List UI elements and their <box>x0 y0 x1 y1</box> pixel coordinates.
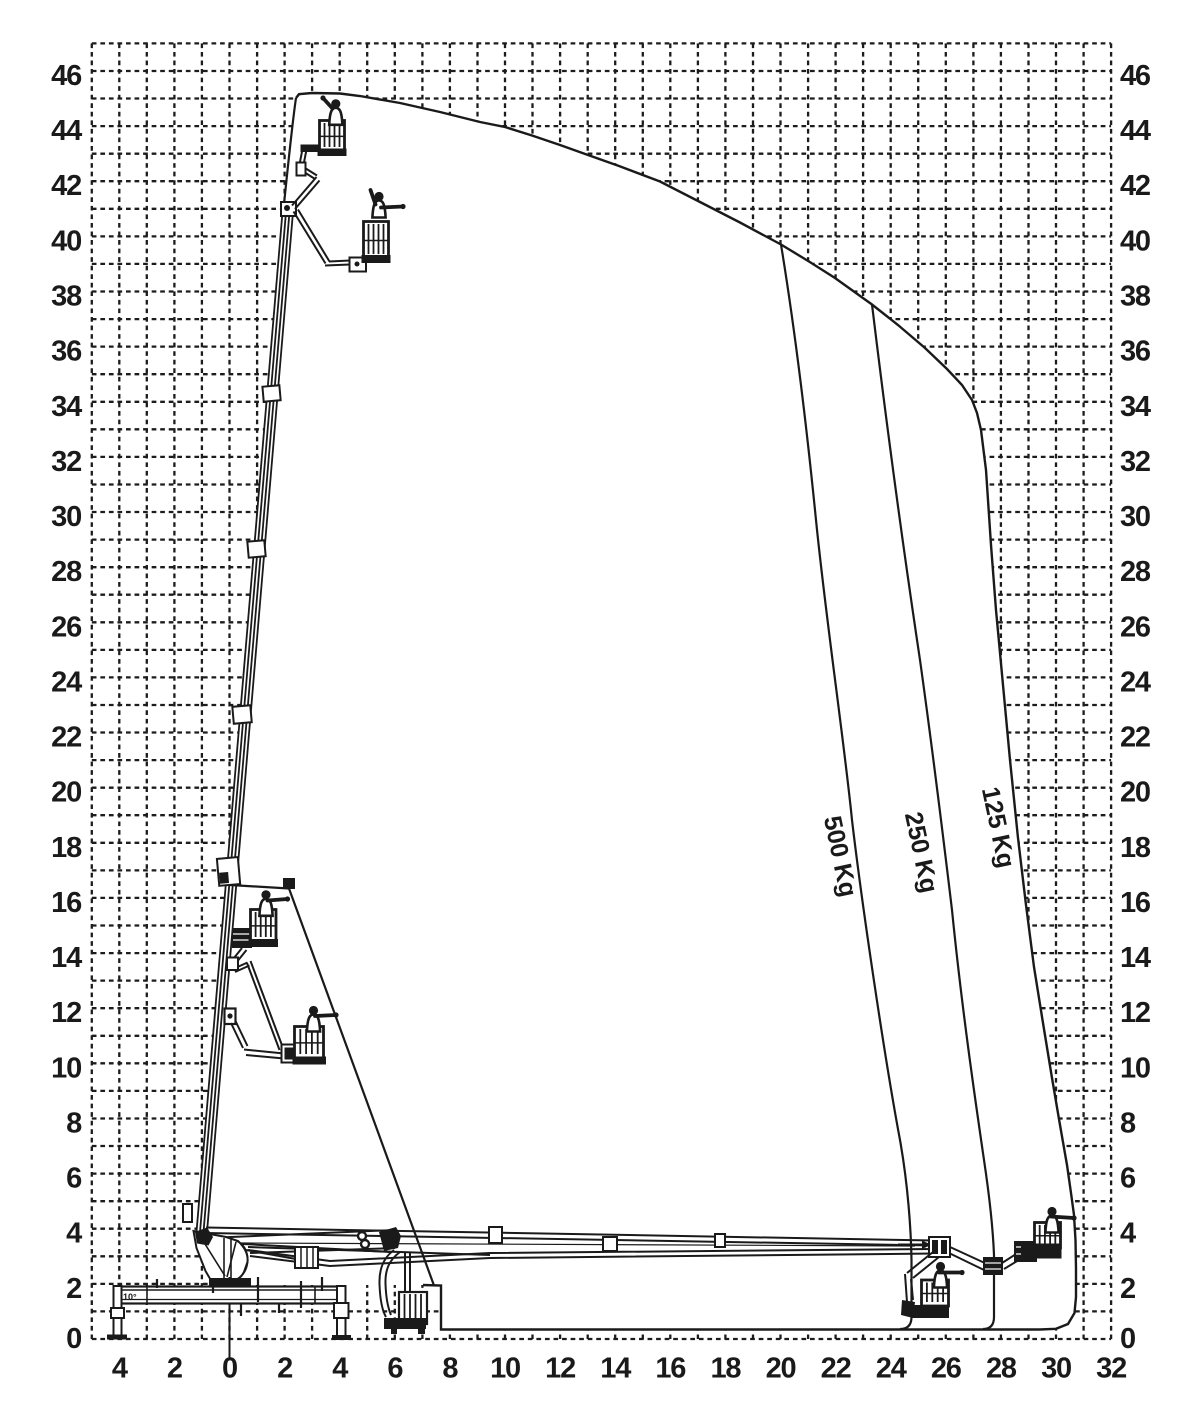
svg-text:40: 40 <box>1120 225 1150 257</box>
svg-text:6: 6 <box>387 1353 403 1385</box>
svg-text:4: 4 <box>1120 1218 1136 1250</box>
svg-text:4: 4 <box>332 1353 348 1385</box>
svg-text:0: 0 <box>1120 1323 1135 1355</box>
svg-text:14: 14 <box>600 1353 631 1385</box>
svg-text:2: 2 <box>277 1353 292 1385</box>
svg-text:20: 20 <box>1120 777 1150 809</box>
svg-text:22: 22 <box>1120 722 1150 754</box>
svg-text:10: 10 <box>1120 1052 1150 1084</box>
svg-text:20: 20 <box>766 1353 796 1385</box>
svg-text:16: 16 <box>51 887 82 919</box>
svg-text:32: 32 <box>1096 1353 1126 1385</box>
svg-text:6: 6 <box>1120 1163 1136 1195</box>
svg-text:28: 28 <box>51 556 82 588</box>
svg-text:26: 26 <box>1120 611 1151 643</box>
svg-text:10°: 10° <box>123 1292 137 1302</box>
svg-text:4: 4 <box>112 1353 128 1385</box>
svg-text:46: 46 <box>1120 60 1151 92</box>
svg-text:22: 22 <box>51 722 81 754</box>
svg-text:30: 30 <box>1041 1353 1071 1385</box>
svg-text:18: 18 <box>710 1353 741 1385</box>
svg-text:42: 42 <box>1120 170 1150 202</box>
svg-text:34: 34 <box>51 391 82 423</box>
svg-text:8: 8 <box>1120 1108 1136 1140</box>
svg-text:8: 8 <box>66 1108 82 1140</box>
svg-text:24: 24 <box>51 666 82 698</box>
svg-text:16: 16 <box>655 1353 686 1385</box>
svg-text:2: 2 <box>167 1353 182 1385</box>
svg-text:2: 2 <box>66 1273 81 1305</box>
svg-text:2: 2 <box>1120 1273 1135 1305</box>
svg-text:18: 18 <box>51 832 82 864</box>
svg-text:8: 8 <box>442 1353 458 1385</box>
svg-text:20: 20 <box>51 777 81 809</box>
svg-text:38: 38 <box>51 281 82 313</box>
svg-text:26: 26 <box>931 1353 962 1385</box>
svg-text:28: 28 <box>986 1353 1017 1385</box>
svg-text:0: 0 <box>222 1353 237 1385</box>
svg-text:44: 44 <box>1120 115 1151 147</box>
svg-text:30: 30 <box>1120 501 1150 533</box>
svg-text:32: 32 <box>51 446 81 478</box>
svg-text:36: 36 <box>51 336 82 368</box>
svg-text:40: 40 <box>51 225 81 257</box>
svg-text:26: 26 <box>51 611 82 643</box>
svg-text:16: 16 <box>1120 887 1151 919</box>
svg-text:42: 42 <box>51 170 81 202</box>
svg-text:0: 0 <box>66 1323 81 1355</box>
svg-text:22: 22 <box>821 1353 851 1385</box>
svg-text:6: 6 <box>66 1163 82 1195</box>
svg-text:12: 12 <box>1120 997 1150 1029</box>
svg-text:32: 32 <box>1120 446 1150 478</box>
svg-text:36: 36 <box>1120 336 1151 368</box>
svg-text:12: 12 <box>51 997 81 1029</box>
svg-text:24: 24 <box>876 1353 907 1385</box>
svg-text:24: 24 <box>1120 666 1151 698</box>
svg-text:10: 10 <box>51 1052 81 1084</box>
svg-text:14: 14 <box>1120 942 1151 974</box>
svg-text:44: 44 <box>51 115 82 147</box>
svg-text:14: 14 <box>51 942 82 974</box>
svg-text:38: 38 <box>1120 281 1151 313</box>
svg-text:10: 10 <box>490 1353 520 1385</box>
svg-text:30: 30 <box>51 501 81 533</box>
svg-text:18: 18 <box>1120 832 1151 864</box>
svg-text:28: 28 <box>1120 556 1151 588</box>
svg-text:12: 12 <box>545 1353 575 1385</box>
svg-text:46: 46 <box>51 60 82 92</box>
svg-text:4: 4 <box>66 1218 82 1250</box>
svg-text:34: 34 <box>1120 391 1151 423</box>
